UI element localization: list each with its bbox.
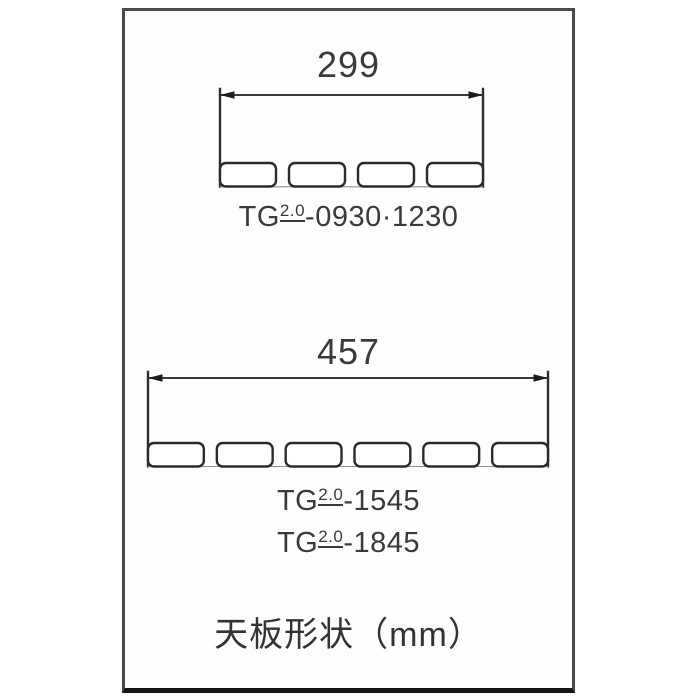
- bottom-shape-profile: [138, 366, 562, 476]
- model-version-superscript: 2.0: [318, 528, 343, 548]
- top-shape-tabs: [220, 163, 483, 187]
- profile-channel-tab: [289, 163, 345, 187]
- dimension-arrow-left-icon: [148, 374, 163, 382]
- dimension-arrow-right-icon: [469, 91, 484, 99]
- profile-channel-tab: [148, 443, 204, 467]
- model-suffix: -0930·1230: [305, 201, 458, 233]
- profile-channel-tab: [220, 163, 276, 187]
- profile-channel-tab: [355, 443, 411, 467]
- top-shape-profile: [205, 85, 500, 197]
- dimension-arrow-right-icon: [534, 374, 549, 382]
- model-version-superscript: 2.0: [280, 202, 305, 222]
- dimension-arrow-left-icon: [220, 91, 235, 99]
- diagram-title: 天板形状（mm）: [122, 618, 575, 654]
- profile-channel-tab: [492, 443, 548, 467]
- profile-channel-tab: [286, 443, 342, 467]
- profile-channel-tab: [423, 443, 479, 467]
- model-prefix: TG: [277, 485, 318, 517]
- bottom-shape-tabs: [148, 443, 548, 467]
- model-prefix: TG: [239, 201, 280, 233]
- top-shape-model-label: TG2.0-0930·1230: [122, 202, 575, 232]
- bottom-shape-model-label-2: TG2.0-1845: [122, 528, 575, 558]
- model-version-superscript: 2.0: [318, 486, 343, 506]
- model-suffix: -1545: [343, 485, 420, 517]
- model-suffix: -1845: [343, 527, 420, 559]
- profile-channel-tab: [427, 163, 483, 187]
- profile-channel-tab: [358, 163, 414, 187]
- drawing-canvas: 299 TG2.0-0930·1230 457 TG2.0-1545 TG2.0…: [0, 0, 700, 700]
- model-prefix: TG: [277, 527, 318, 559]
- profile-channel-tab: [217, 443, 273, 467]
- top-shape-dimension-label: 299: [122, 46, 575, 84]
- bottom-shape-model-label-1: TG2.0-1545: [122, 486, 575, 516]
